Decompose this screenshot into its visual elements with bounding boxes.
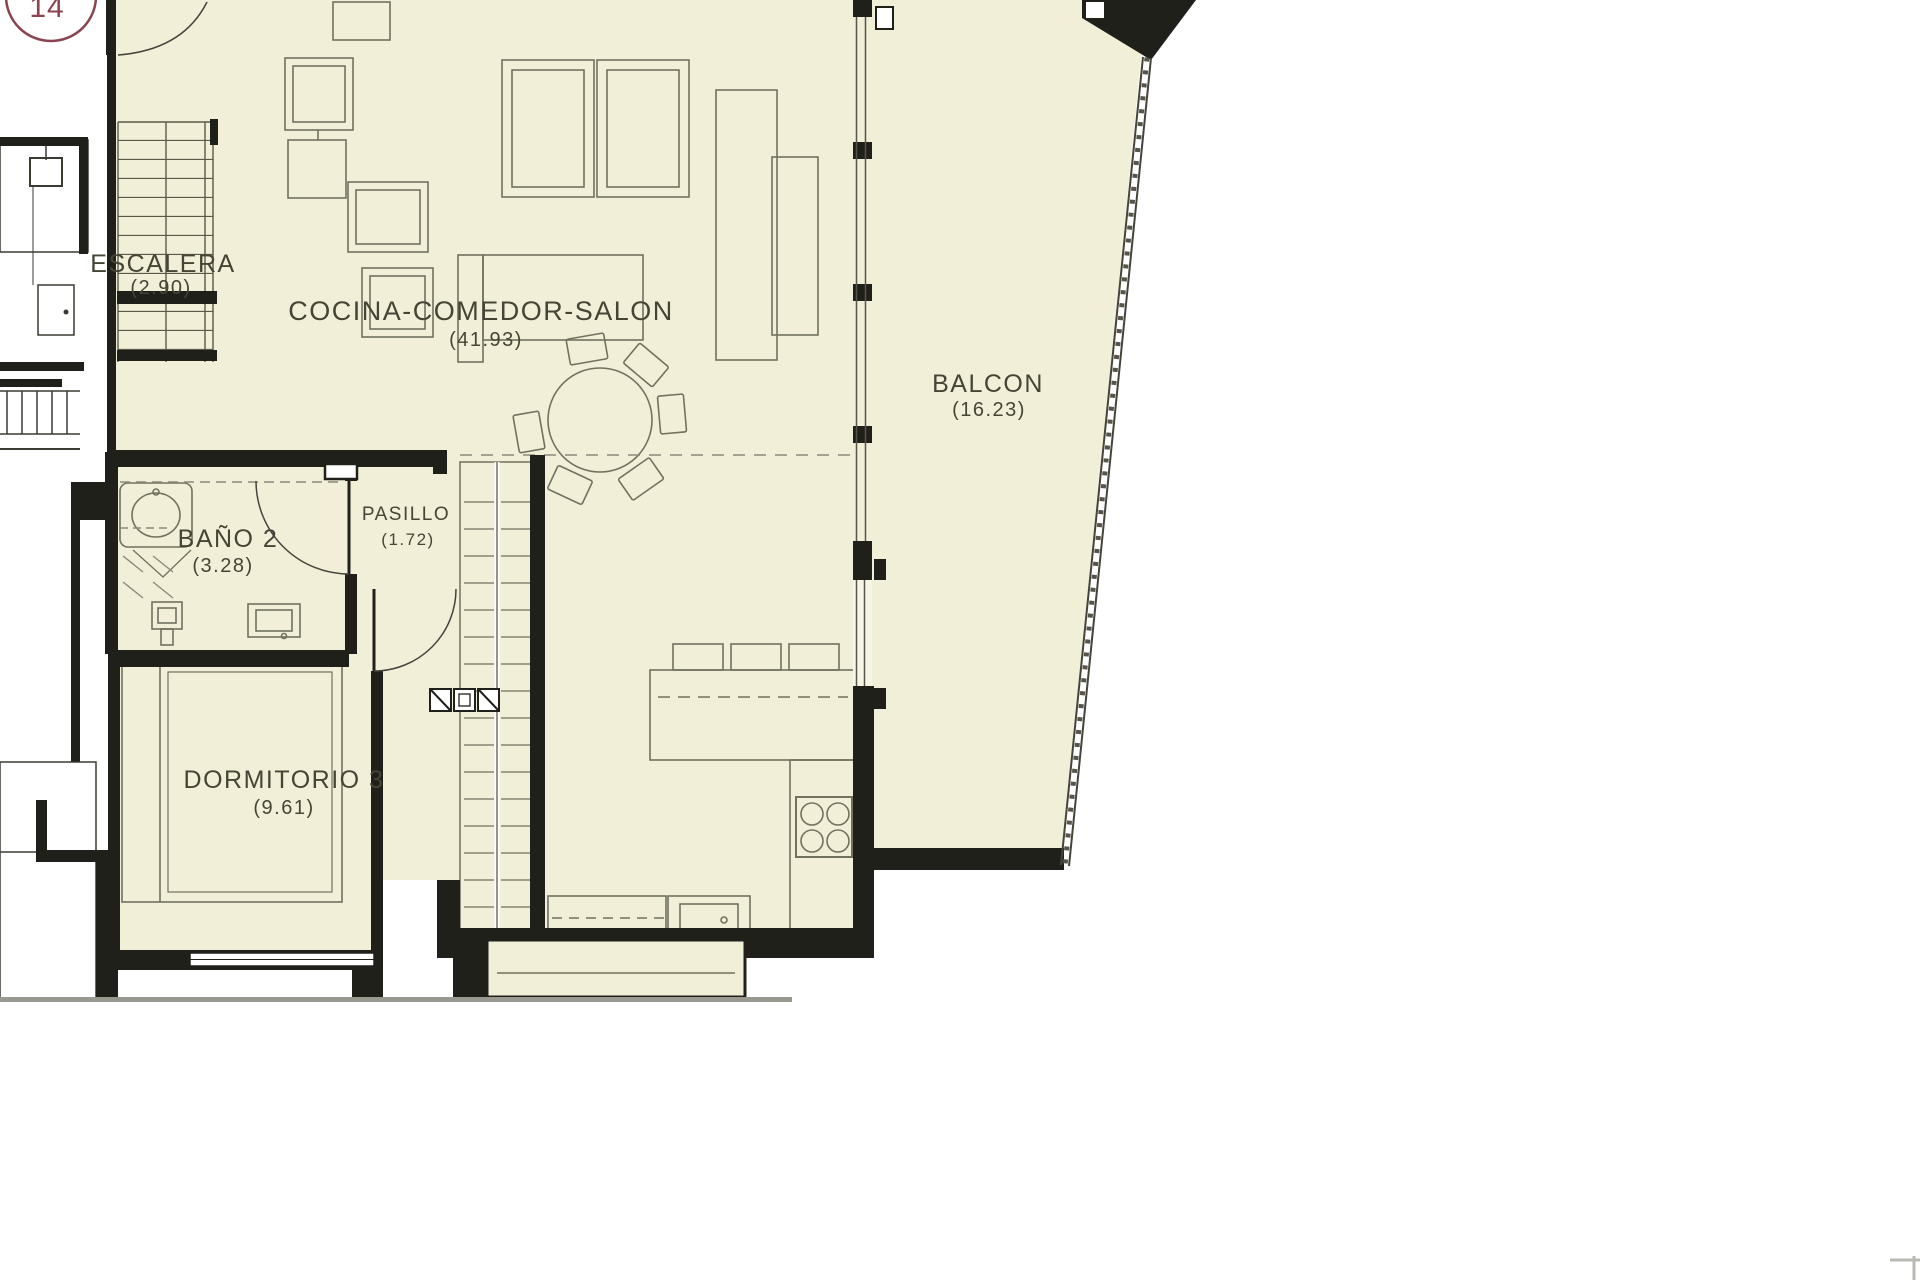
- west-wall: [107, 0, 116, 454]
- area-dormitorio: (9.61): [253, 797, 314, 819]
- bedroom-east-wall: [371, 671, 383, 958]
- corner-mark: [1890, 1256, 1920, 1280]
- area-escalera: (2.90): [130, 277, 191, 299]
- door-frame: [325, 464, 357, 479]
- balcony-south-wall: [872, 848, 1064, 870]
- area-pasillo: (1.72): [381, 530, 434, 549]
- label-dormitorio: DORMITORIO 3: [184, 766, 385, 794]
- label-bano: BAÑO 2: [178, 524, 279, 553]
- bathroom-north-wall: [108, 450, 447, 467]
- area-cocina: (41.93): [449, 329, 523, 351]
- neighbor-door: [38, 285, 74, 335]
- bay-window: [487, 940, 745, 997]
- area-bano: (3.28): [192, 555, 253, 577]
- meter-boxes: [430, 689, 499, 711]
- area-balcon: (16.23): [952, 399, 1026, 421]
- boundary-lines: [0, 997, 1920, 1280]
- label-balcon: BALCON: [932, 370, 1044, 398]
- label-cocina: COCINA-COMEDOR-SALON: [288, 296, 674, 326]
- east-wall: [853, 686, 874, 945]
- unit-badge-number: 14: [29, 0, 64, 24]
- label-pasillo: PASILLO: [362, 504, 450, 525]
- label-escalera: ESCALERA: [90, 250, 235, 278]
- stair-railing-hatch: [0, 391, 80, 434]
- unit-badge: 14: [6, 0, 96, 41]
- staircase: [117, 119, 218, 362]
- floor-plan-canvas: 14 ESCALERA (2.90) COCINA-COMEDOR-SALON …: [0, 0, 1920, 1280]
- floor-plan-svg: 14 ESCALERA (2.90) COCINA-COMEDOR-SALON …: [0, 0, 1920, 1280]
- kitchen-west-wall: [530, 455, 545, 942]
- bedroom-north-wall: [113, 650, 349, 667]
